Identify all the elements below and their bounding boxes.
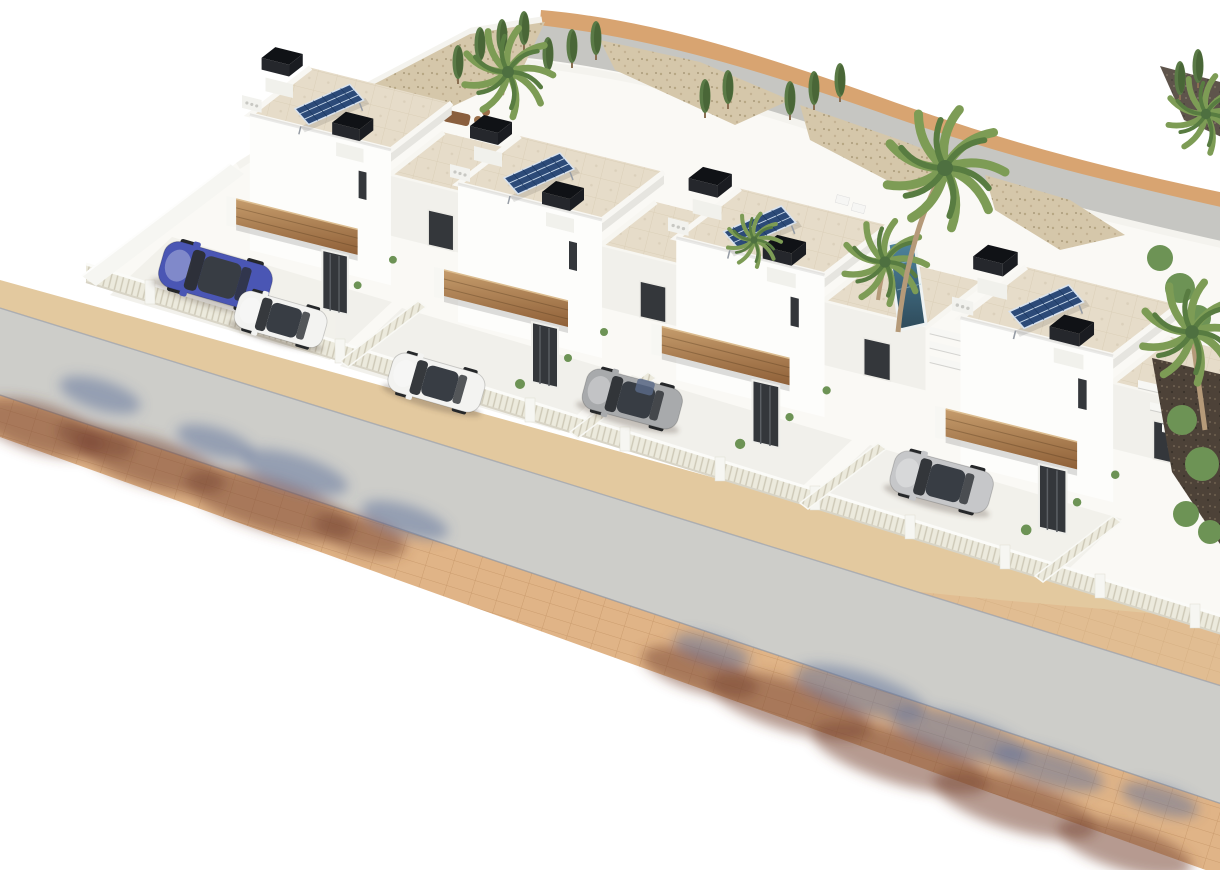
bush <box>1167 405 1197 435</box>
bush <box>1185 447 1219 481</box>
bush <box>1173 501 1199 527</box>
climbing-plant <box>1147 245 1173 271</box>
scene-svg <box>0 0 1220 870</box>
architectural-render <box>0 0 1220 870</box>
